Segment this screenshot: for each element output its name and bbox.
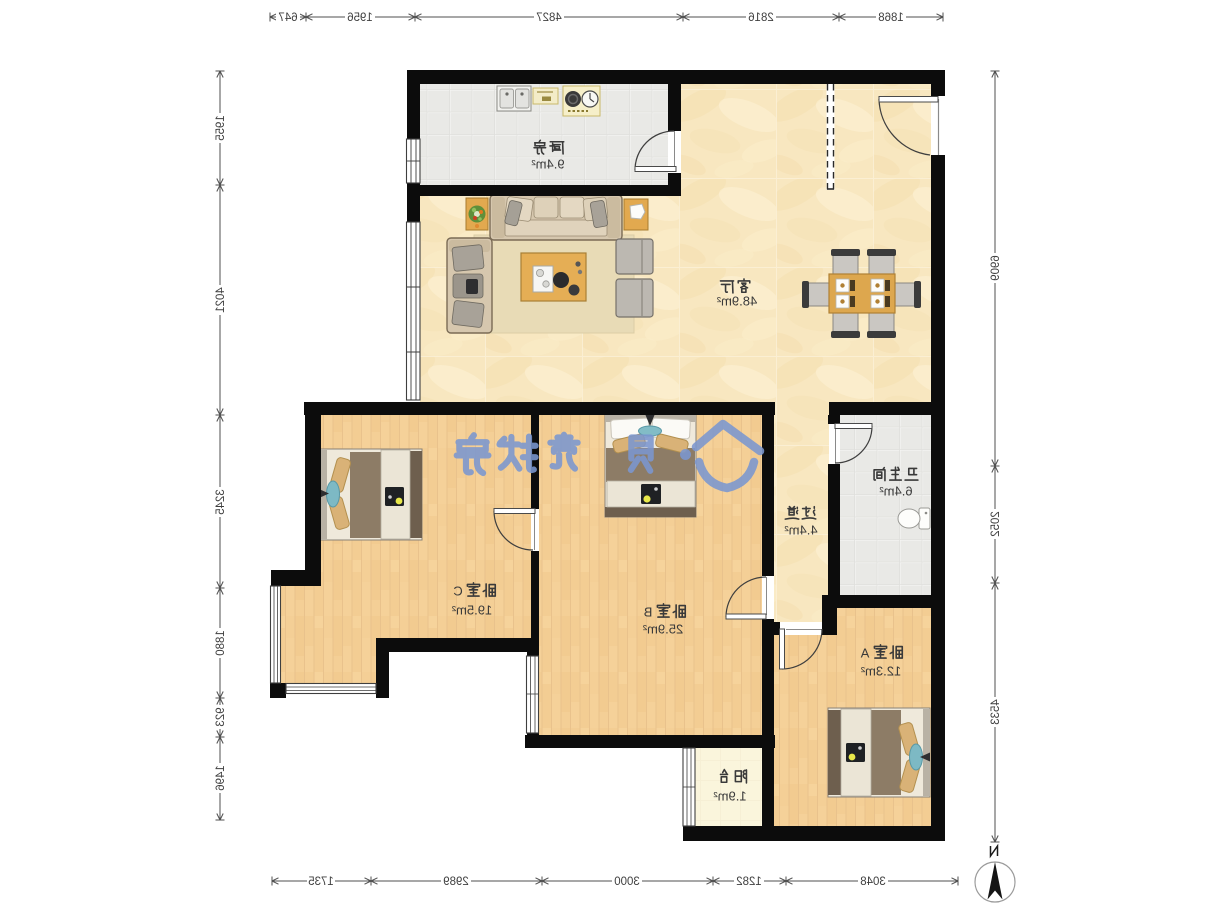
- svg-text:25.9m²: 25.9m²: [642, 622, 683, 637]
- svg-text:1282: 1282: [736, 876, 762, 888]
- svg-text:A: A: [860, 646, 869, 661]
- svg-text:12.3m²: 12.3m²: [860, 664, 901, 679]
- svg-text:4.4m²: 4.4m²: [784, 523, 818, 538]
- svg-text:3048: 3048: [860, 876, 886, 888]
- svg-text:1880: 1880: [215, 630, 227, 656]
- svg-text:2052: 2052: [990, 511, 1002, 537]
- svg-text:647: 647: [278, 12, 297, 24]
- svg-text:1735: 1735: [308, 876, 334, 888]
- svg-text:3245: 3245: [215, 489, 227, 515]
- svg-text:1956: 1956: [347, 12, 373, 24]
- svg-text:48.9m²: 48.9m²: [716, 294, 757, 309]
- svg-text:923: 923: [215, 707, 227, 726]
- svg-text:4533: 4533: [990, 699, 1002, 725]
- svg-text:19.5m²: 19.5m²: [451, 603, 492, 618]
- svg-text:1868: 1868: [878, 12, 904, 24]
- svg-text:1496: 1496: [215, 765, 227, 791]
- svg-text:C: C: [453, 584, 462, 599]
- svg-text:4827: 4827: [536, 12, 562, 24]
- svg-text:1955: 1955: [215, 115, 227, 141]
- svg-text:3000: 3000: [614, 876, 640, 888]
- svg-text:6.4m²: 6.4m²: [879, 484, 913, 499]
- svg-text:1.9m²: 1.9m²: [713, 789, 747, 804]
- svg-text:4021: 4021: [215, 287, 227, 313]
- svg-text:9.4m²: 9.4m²: [531, 157, 565, 172]
- svg-text:2816: 2816: [748, 12, 774, 24]
- svg-text:6909: 6909: [990, 255, 1002, 281]
- svg-text:B: B: [644, 605, 653, 620]
- svg-text:2989: 2989: [443, 876, 469, 888]
